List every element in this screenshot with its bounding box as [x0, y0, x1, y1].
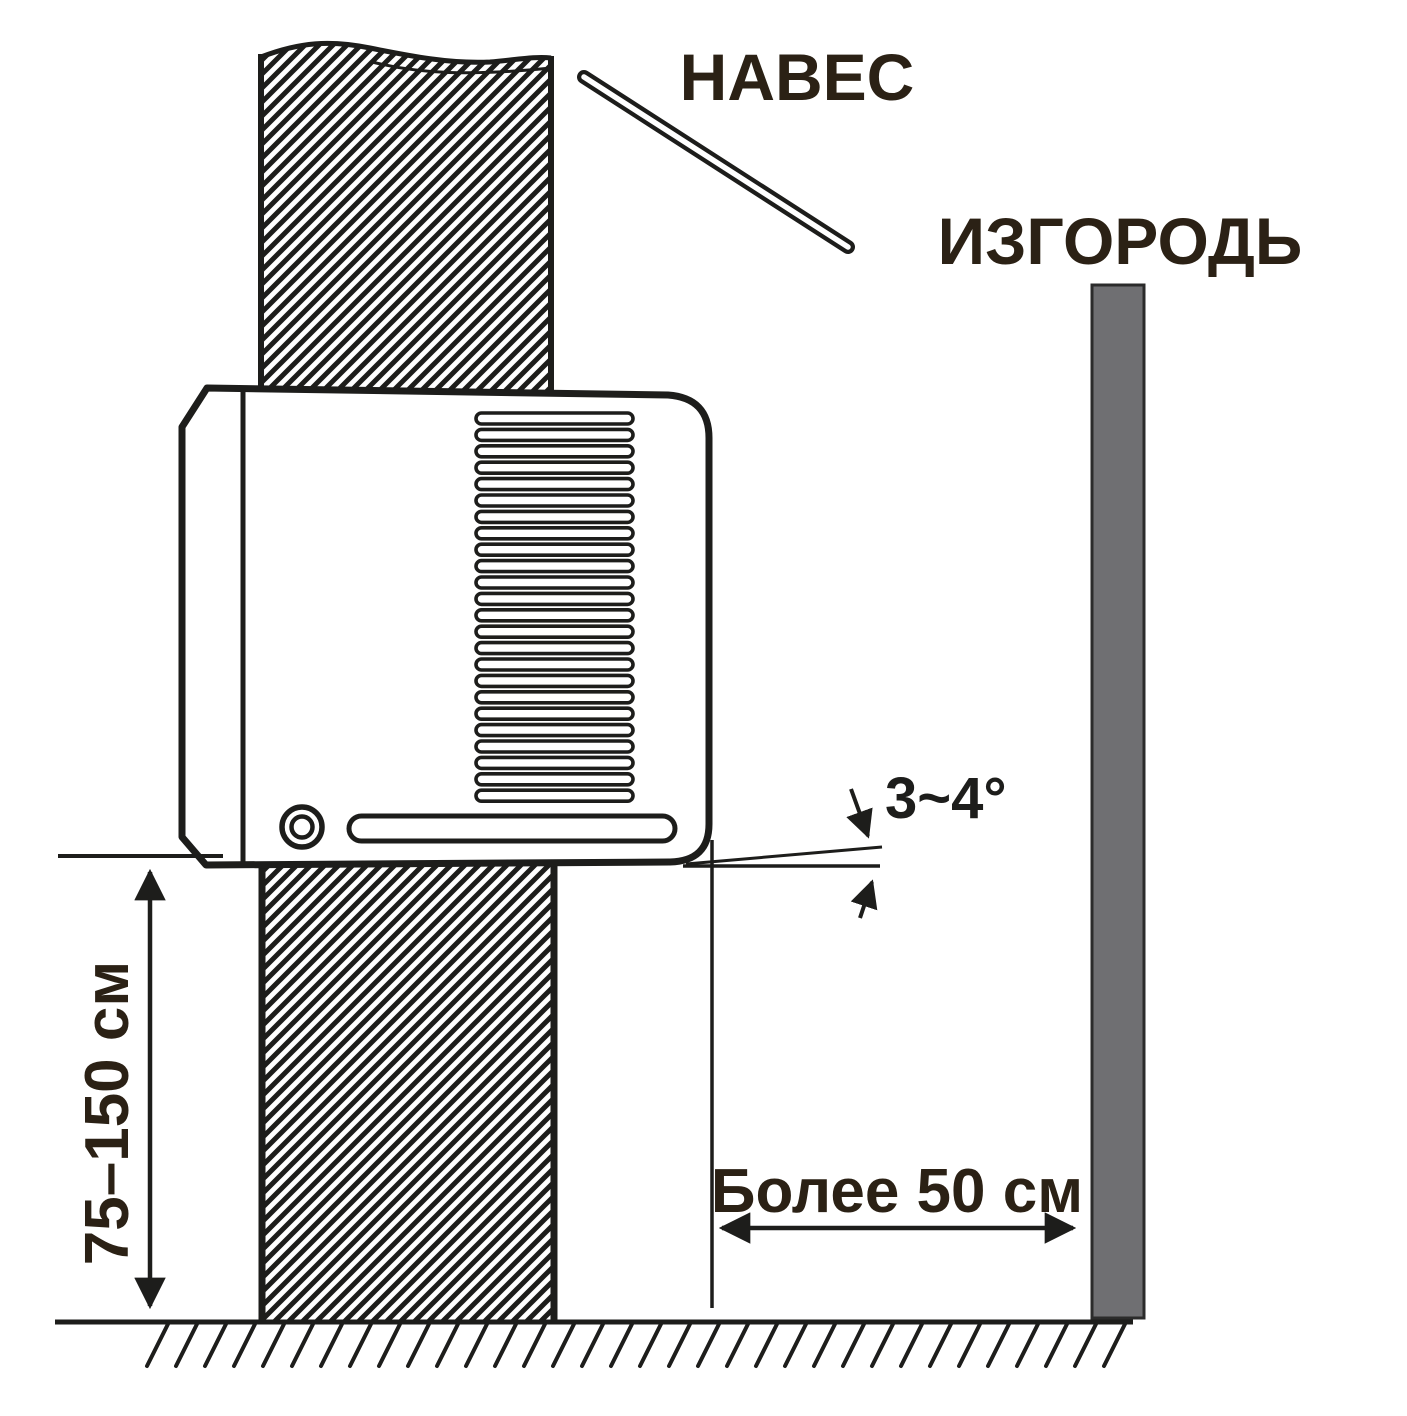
- angle-upper-pointer-arrow: [851, 789, 868, 836]
- wall-upper-section: [261, 43, 551, 392]
- installation-diagram: 75–150 см 3~4° Более 50 см НАВЕС ИЗГОРОД…: [0, 0, 1407, 1416]
- ground-hatch-ticks: [147, 1324, 1125, 1366]
- unit-bottom-slot: [349, 816, 675, 841]
- unit-knob-inner: [292, 817, 313, 838]
- diagram-canvas: 75–150 см 3~4° Более 50 см НАВЕС ИЗГОРОД…: [0, 0, 1407, 1416]
- wall-lower-hatch-fill: [261, 866, 554, 1322]
- wall-lower-section: [261, 866, 554, 1322]
- canopy-label: НАВЕС: [680, 40, 915, 114]
- angle-lower-pointer-arrow: [860, 882, 872, 918]
- ground: [55, 1322, 1133, 1366]
- fence-label: ИЗГОРОДЬ: [938, 204, 1303, 278]
- height-dimension: 75–150 см: [58, 856, 223, 1306]
- wall-upper-hatch-fill: [261, 43, 551, 392]
- fence-bar: [1092, 285, 1144, 1318]
- height-dimension-label: 75–150 см: [73, 961, 142, 1265]
- distance-dimension: Более 50 см: [711, 1157, 1083, 1228]
- angle-tilted-line: [686, 847, 882, 864]
- outdoor-unit: [182, 388, 709, 865]
- angle-label: 3~4°: [885, 766, 1007, 831]
- distance-dimension-label: Более 50 см: [711, 1157, 1083, 1226]
